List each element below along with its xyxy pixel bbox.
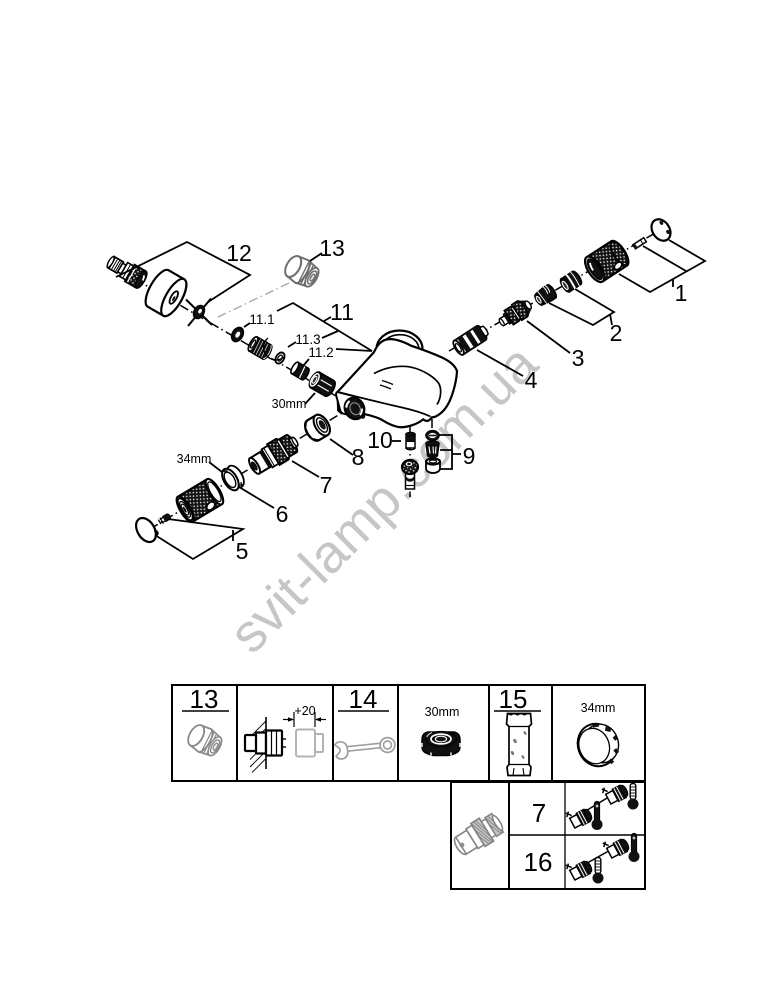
svg-text:8: 8 xyxy=(352,444,365,470)
svg-text:+20: +20 xyxy=(294,704,315,718)
svg-text:13: 13 xyxy=(319,235,345,261)
svg-text:15: 15 xyxy=(499,684,528,714)
svg-text:4: 4 xyxy=(525,367,538,393)
svg-text:11.2: 11.2 xyxy=(308,345,333,360)
svg-text:7: 7 xyxy=(532,798,546,828)
svg-text:30mm: 30mm xyxy=(425,705,460,719)
svg-text:13: 13 xyxy=(190,684,219,714)
svg-text:30mm: 30mm xyxy=(272,397,307,411)
svg-text:11: 11 xyxy=(330,299,354,325)
svg-text:5: 5 xyxy=(236,538,249,564)
svg-text:14: 14 xyxy=(349,684,378,714)
svg-text:34mm: 34mm xyxy=(581,701,616,715)
svg-text:12: 12 xyxy=(226,240,252,266)
svg-text:9: 9 xyxy=(463,443,476,469)
svg-text:11.1: 11.1 xyxy=(249,312,274,327)
svg-text:7: 7 xyxy=(320,472,333,498)
svg-text:3: 3 xyxy=(572,345,585,371)
svg-text:6: 6 xyxy=(276,501,289,527)
svg-text:1: 1 xyxy=(675,280,688,306)
svg-text:16: 16 xyxy=(524,847,553,877)
svg-text:34mm: 34mm xyxy=(177,452,212,466)
svg-text:10: 10 xyxy=(367,427,393,453)
svg-text:2: 2 xyxy=(610,320,623,346)
